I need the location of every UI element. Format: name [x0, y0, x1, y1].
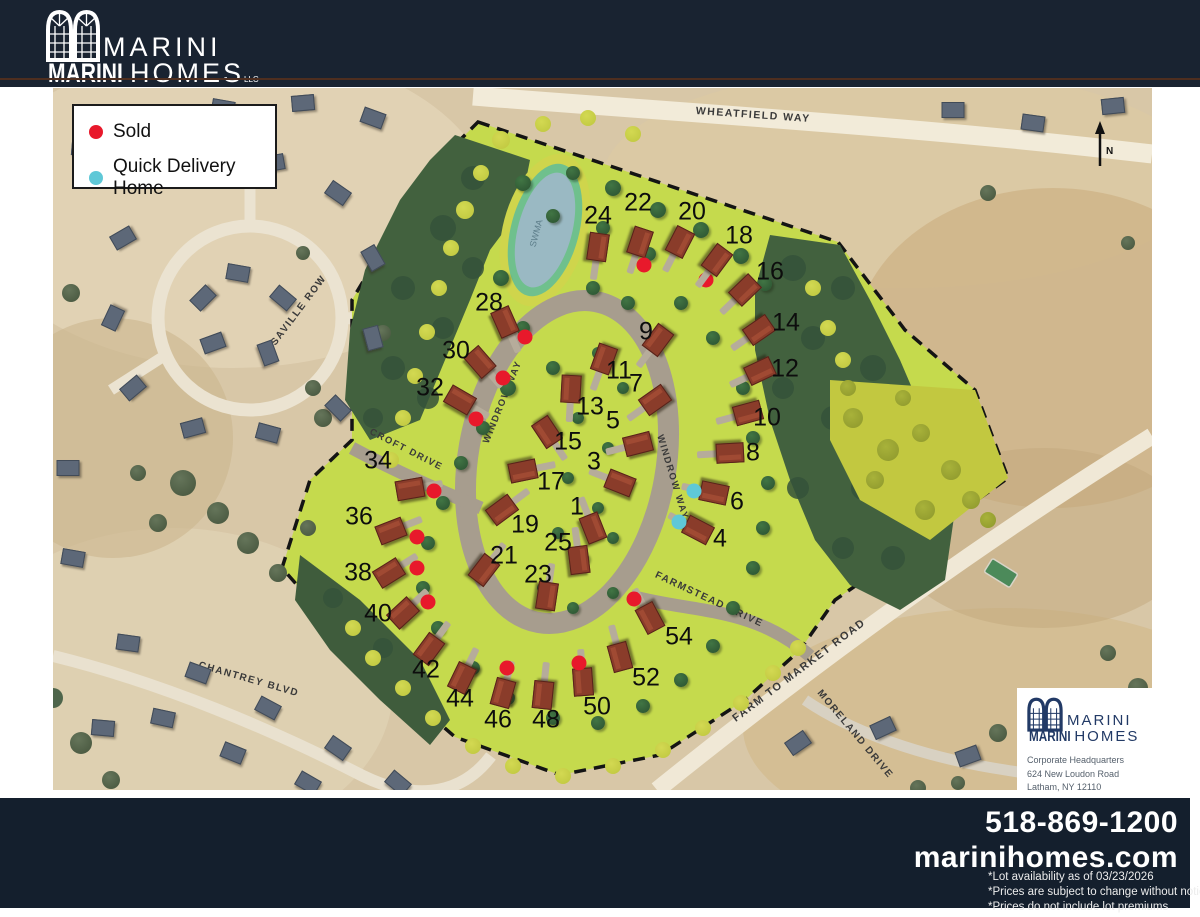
neighborhood-house — [360, 244, 385, 272]
tree-icon — [650, 202, 666, 218]
lot-number-label: 25 — [544, 531, 572, 556]
tree-icon — [269, 564, 287, 582]
sold-dot — [469, 412, 484, 427]
neighborhood-house — [269, 284, 297, 311]
sold-dot — [637, 258, 652, 273]
shrub-fringe — [456, 201, 474, 219]
tree-icon — [1121, 236, 1135, 250]
neighborhood-house — [60, 548, 85, 568]
corp-brand-top: MARINI — [1067, 712, 1132, 729]
neighborhood-house — [324, 735, 352, 761]
shrub-fringe — [625, 126, 641, 142]
tree-icon — [607, 587, 619, 599]
lot-number-label: 44 — [446, 687, 474, 712]
sold-dot-icon — [89, 125, 103, 139]
shrub-fringe — [395, 410, 411, 426]
tree-icon — [546, 361, 560, 375]
sold-dot — [500, 661, 515, 676]
tree-icon — [305, 380, 321, 396]
window-logo-icon — [45, 8, 101, 62]
lot-number-label: 15 — [554, 430, 582, 455]
shrub-fringe — [443, 240, 459, 256]
sold-dot — [421, 595, 436, 610]
sold-dot — [518, 330, 533, 345]
tree-icon — [733, 248, 749, 264]
neighborhood-house — [384, 769, 412, 790]
shrub-fringe — [695, 720, 711, 736]
neighborhood-house — [199, 332, 226, 355]
house-marker — [698, 480, 730, 505]
corp-line1: Corporate Headquarters — [1027, 754, 1152, 768]
tree-icon — [566, 166, 580, 180]
lot-number-label: 14 — [772, 311, 800, 336]
quick-delivery-dot — [672, 515, 687, 530]
shrub-fringe — [535, 116, 551, 132]
lot-number-label: 34 — [364, 449, 392, 474]
lot-number-label: 19 — [511, 513, 539, 538]
legend-label-sold: Sold — [113, 121, 151, 143]
tree-icon — [674, 673, 688, 687]
tree-icon — [70, 732, 92, 754]
sold-dot — [410, 561, 425, 576]
tree-icon — [605, 180, 621, 196]
house-marker — [607, 641, 634, 673]
neighborhood-house — [225, 263, 250, 283]
shrub-fringe — [365, 650, 381, 666]
disclaimer-notes: *Lot availability as of 03/23/2026 *Pric… — [988, 870, 1188, 916]
shrub-fringe — [555, 768, 571, 784]
tree-icon — [454, 456, 468, 470]
legend-row-quick-delivery: Quick Delivery Home — [89, 156, 275, 200]
brand-name-bottom: MARINIHOMESLLC — [48, 58, 259, 89]
shrub-fringe — [465, 738, 481, 754]
tree-icon — [910, 780, 926, 790]
lot-number-label: 6 — [730, 490, 744, 515]
lot-number-label: 32 — [416, 376, 444, 401]
shrub-fringe — [431, 280, 447, 296]
lot-number-label: 18 — [725, 224, 753, 249]
neighborhood-house — [294, 770, 322, 790]
shrub-fringe — [835, 352, 851, 368]
house-marker — [622, 431, 654, 457]
header-bar: MARINI MARINIHOMESLLC — [0, 0, 1200, 87]
shrub-patch — [866, 471, 884, 489]
tree-icon — [102, 771, 120, 789]
tree-icon — [756, 521, 770, 535]
lot-number-label: 24 — [584, 204, 612, 229]
tree-icon — [621, 296, 635, 310]
shrub-fringe — [805, 280, 821, 296]
neighborhood-house — [291, 94, 315, 112]
lot-number-label: 17 — [537, 470, 565, 495]
sold-dot — [496, 371, 511, 386]
house-marker — [715, 442, 744, 464]
shrub-fringe — [605, 758, 621, 774]
tree-icon — [567, 602, 579, 614]
tree-icon — [300, 520, 316, 536]
house-marker — [374, 517, 407, 546]
lot-number-label: 1 — [570, 495, 584, 520]
shrub-patch — [912, 424, 930, 442]
lot-number-label: 9 — [639, 320, 653, 345]
corporate-address: Corporate Headquarters 624 New Loudon Ro… — [1027, 754, 1152, 795]
house-marker — [603, 469, 636, 498]
sold-dot — [627, 592, 642, 607]
corp-line3: Latham, NY 12110 — [1027, 781, 1152, 795]
quick-delivery-dot — [687, 484, 702, 499]
neighborhood-house — [1020, 113, 1045, 132]
house-marker — [490, 677, 517, 709]
tree-icon — [546, 209, 560, 223]
shrub-fringe — [492, 131, 510, 149]
header-divider — [0, 78, 1200, 80]
shrub-patch — [962, 491, 980, 509]
shrub-patch — [843, 408, 863, 428]
lot-number-label: 7 — [629, 372, 643, 397]
tree-icon — [706, 331, 720, 345]
lot-number-label: 16 — [756, 260, 784, 285]
marini-homes-logo: MARINI MARINIHOMESLLC — [45, 6, 345, 82]
shrub-fringe — [580, 110, 596, 126]
tree-icon — [149, 514, 167, 532]
lot-number-label: 52 — [632, 666, 660, 691]
tree-icon — [586, 281, 600, 295]
phone-number: 518-869-1200 — [888, 806, 1178, 841]
neighborhood-house — [119, 374, 147, 401]
shrub-fringe — [790, 640, 806, 656]
neighborhood-house — [254, 696, 282, 721]
legend-row-sold: Sold — [89, 121, 275, 143]
quick-delivery-dot-icon — [89, 171, 103, 185]
shrub-fringe — [473, 165, 489, 181]
shrub-fringe — [345, 620, 361, 636]
footer-bar: 518-869-1200 marinihomes.com *Lot availa… — [0, 798, 1190, 908]
neighborhood-house — [101, 304, 125, 332]
tree-icon — [951, 776, 965, 790]
legend-label-quick-delivery: Quick Delivery Home — [113, 156, 275, 200]
house-marker — [395, 477, 426, 501]
legend-box: Sold Quick Delivery Home — [72, 104, 277, 189]
tree-icon — [436, 496, 450, 510]
lot-number-label: 38 — [344, 561, 372, 586]
sold-dot — [410, 530, 425, 545]
tree-icon — [515, 175, 531, 191]
corporate-info-box: MARINI MARINIHOMES Corporate Headquarter… — [1017, 688, 1152, 806]
lot-number-label: 40 — [364, 602, 392, 627]
tree-icon — [237, 532, 259, 554]
lot-number-label: 21 — [490, 544, 518, 569]
neighborhood-house — [255, 422, 281, 443]
note-availability: *Lot availability as of 03/23/2026 — [988, 870, 1188, 885]
neighborhood-house — [57, 460, 80, 476]
corporate-logo: MARINI MARINIHOMES — [1027, 696, 1152, 748]
shrub-fringe — [765, 665, 781, 681]
neighborhood-house — [784, 730, 812, 756]
lot-number-label: 13 — [576, 395, 604, 420]
lot-number-label: 50 — [583, 695, 611, 720]
tree-icon — [1100, 645, 1116, 661]
tree-icon — [62, 284, 80, 302]
lot-number-label: 8 — [746, 441, 760, 466]
tree-icon — [761, 476, 775, 490]
shrub-fringe — [425, 710, 441, 726]
lot-number-label: 28 — [475, 291, 503, 316]
lot-number-label: 30 — [442, 339, 470, 364]
shrub-fringe — [733, 695, 749, 711]
tree-icon — [674, 296, 688, 310]
lot-number-label: 3 — [587, 450, 601, 475]
tree-icon — [170, 470, 196, 496]
neighborhood-house — [150, 708, 176, 728]
lot-number-label: 12 — [771, 357, 799, 382]
lot-number-label: 20 — [678, 200, 706, 225]
lot-number-label: 4 — [713, 527, 727, 552]
tree-icon — [746, 561, 760, 575]
shrub-patch — [840, 380, 856, 396]
tree-icon — [314, 409, 332, 427]
shrub-fringe — [419, 324, 435, 340]
shrub-fringe — [505, 758, 521, 774]
lot-number-label: 42 — [412, 658, 440, 683]
corp-brand-bottom: MARINIHOMES — [1029, 728, 1139, 745]
tree-icon — [207, 502, 229, 524]
neighborhood-house — [942, 102, 965, 118]
tree-icon — [607, 532, 619, 544]
lot-number-label: 46 — [484, 708, 512, 733]
neighborhood-house — [257, 339, 280, 366]
neighborhood-house — [359, 107, 386, 130]
sold-dot — [572, 656, 587, 671]
note-lot-premiums: *Prices do not include lot premiums — [988, 900, 1188, 915]
neighborhood-house — [189, 284, 217, 312]
lot-number-label: 23 — [524, 563, 552, 588]
tree-icon — [706, 639, 720, 653]
house-marker — [586, 232, 610, 263]
corp-line2: 624 New Loudon Road — [1027, 768, 1152, 782]
tree-icon — [636, 699, 650, 713]
lot-number-label: 22 — [624, 191, 652, 216]
tree-icon — [493, 270, 509, 286]
tree-icon — [130, 465, 146, 481]
sold-dot — [427, 484, 442, 499]
shrub-fringe — [820, 320, 836, 336]
neighborhood-house — [219, 741, 246, 764]
shrub-patch — [915, 500, 935, 520]
tree-icon — [980, 185, 996, 201]
shrub-patch — [941, 460, 961, 480]
note-prices-change: *Prices are subject to change without no… — [988, 885, 1188, 900]
lot-number-label: 54 — [665, 625, 693, 650]
tree-icon — [989, 724, 1007, 742]
shrub-fringe — [655, 742, 671, 758]
neighborhood-house — [109, 225, 137, 250]
tree-icon — [296, 246, 310, 260]
neighborhood-house — [180, 417, 206, 438]
shrub-patch — [877, 439, 899, 461]
shrub-patch — [980, 512, 996, 528]
neighborhood-house — [324, 180, 352, 206]
house-marker — [507, 458, 538, 483]
contact-block: 518-869-1200 marinihomes.com — [888, 806, 1178, 875]
neighborhood-house — [91, 719, 115, 737]
lot-number-label: 10 — [753, 406, 781, 431]
lot-number-label: 5 — [606, 409, 620, 434]
window-logo-icon-small — [1027, 696, 1063, 732]
neighborhood-house — [1101, 97, 1126, 115]
tree-icon — [726, 601, 740, 615]
shrub-fringe — [395, 680, 411, 696]
neighborhood-house — [954, 745, 981, 768]
shrub-patch — [895, 390, 911, 406]
lot-number-label: 48 — [532, 708, 560, 733]
lot-number-label: 36 — [345, 505, 373, 530]
neighborhood-house — [115, 633, 140, 652]
neighborhood-house — [869, 716, 897, 740]
neighborhood-house — [184, 662, 211, 685]
